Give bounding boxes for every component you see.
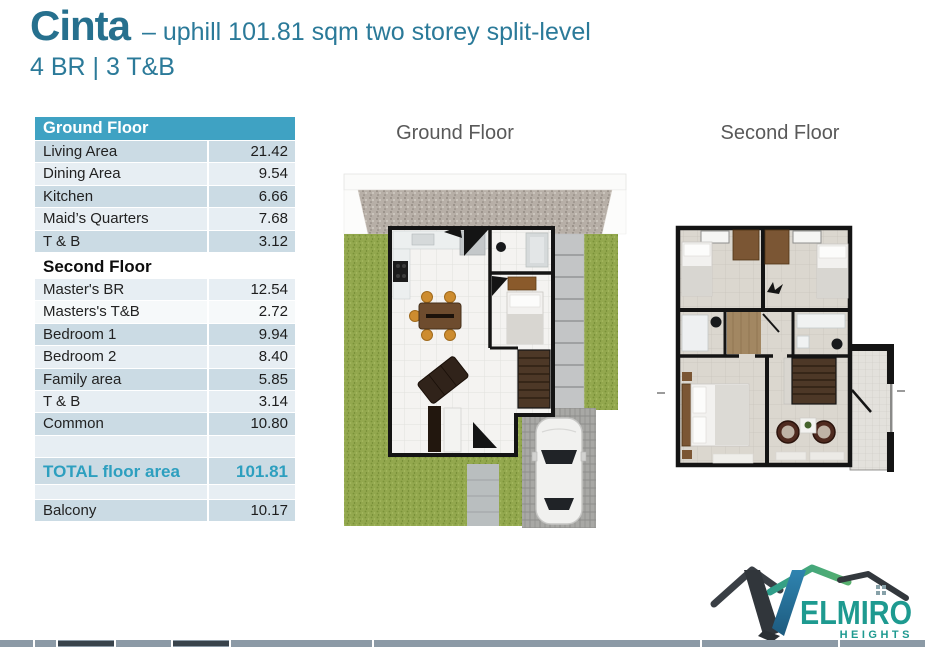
- table-row: Bedroom 19.94: [35, 324, 295, 346]
- row-label: Bedroom 1: [35, 324, 209, 345]
- row-value: 3.14: [209, 391, 295, 412]
- stairs: [784, 358, 836, 404]
- sink: [797, 336, 809, 348]
- dining-chair: [445, 292, 456, 303]
- row-value: 12.54: [209, 279, 295, 300]
- table-row: Common10.80: [35, 413, 295, 435]
- table-section-row: Second Floor: [35, 253, 295, 279]
- row-label: Kitchen: [35, 186, 209, 207]
- right-margin: [596, 410, 630, 530]
- row-label: TOTAL floor area: [35, 458, 209, 484]
- row-label: [35, 485, 209, 499]
- row-label: Balcony: [35, 500, 209, 521]
- console-shelf: [444, 408, 461, 452]
- cabinet: [508, 277, 536, 290]
- dimension-tick: [897, 390, 905, 392]
- row-value: 9.54: [209, 163, 295, 184]
- nightstand: [682, 450, 692, 459]
- row-value: [209, 485, 295, 499]
- stove: [393, 261, 408, 282]
- table-row: Family area5.85: [35, 369, 295, 391]
- tub: [797, 314, 845, 328]
- spec-line: 4 BR | 3 T&B: [30, 53, 591, 82]
- ground-floor-plan: [340, 168, 630, 530]
- car: [532, 418, 586, 524]
- headboard: [682, 384, 691, 446]
- row-value: 8.40: [209, 346, 295, 367]
- row-value: [209, 253, 295, 278]
- skylight: [793, 231, 821, 243]
- closet: [765, 230, 789, 264]
- nightstand: [682, 372, 692, 381]
- row-label: Masters's T&B: [35, 301, 209, 322]
- shower: [682, 315, 708, 351]
- table-row: Living Area21.42: [35, 141, 295, 163]
- toilet: [496, 242, 506, 252]
- row-value: 10.80: [209, 413, 295, 434]
- table-row: T & B3.12: [35, 231, 295, 253]
- table-row: Bedroom 28.40: [35, 346, 295, 368]
- title-line: Cinta – uphill 101.81 sqm two storey spl…: [30, 2, 591, 50]
- row-value: [209, 436, 295, 457]
- tv-unit: [428, 406, 441, 452]
- row-label: [35, 436, 209, 457]
- row-label: T & B: [35, 231, 209, 252]
- closet: [733, 230, 759, 260]
- row-value: 6.66: [209, 186, 295, 207]
- plant: [805, 422, 812, 429]
- kitchen-sink: [412, 234, 434, 245]
- mat: [776, 452, 806, 460]
- flyer-page: Cinta – uphill 101.81 sqm two storey spl…: [0, 0, 925, 647]
- toilet: [832, 339, 843, 350]
- table-row: Masters's T&B2.72: [35, 301, 295, 323]
- table-header-row: Ground Floor: [35, 117, 295, 141]
- second-floor-title: Second Floor: [665, 122, 895, 145]
- velmiro-heights-logo: ELMIRO HEIGHTS: [700, 558, 920, 642]
- ground-floor-plan-image: [340, 168, 630, 530]
- top-wall: [344, 174, 626, 190]
- table-row: Balcony10.17: [35, 500, 295, 522]
- row-value: 5.85: [209, 369, 295, 390]
- table-row: Kitchen6.66: [35, 186, 295, 208]
- dining-chair: [445, 330, 456, 341]
- balcony: [848, 344, 894, 472]
- row-value: [209, 117, 295, 140]
- row-value: 2.72: [209, 301, 295, 322]
- rug: [713, 454, 753, 463]
- table-row: Maid’s Quarters7.68: [35, 208, 295, 230]
- ground-floor-title: Ground Floor: [340, 122, 570, 145]
- mat: [810, 452, 844, 460]
- row-label: Master's BR: [35, 279, 209, 300]
- skylight: [701, 231, 729, 243]
- dimension-tick: [657, 392, 665, 394]
- row-label: Second Floor: [35, 253, 209, 278]
- table-spacer-row: [35, 436, 295, 458]
- table-row: Dining Area9.54: [35, 163, 295, 185]
- stairs: [518, 350, 550, 408]
- logo-wordmark: ELMIRO: [800, 594, 912, 631]
- page-subtitle: – uphill 101.81 sqm two storey split-lev…: [142, 18, 591, 47]
- page-title: Cinta: [30, 2, 130, 50]
- row-label: Living Area: [35, 141, 209, 162]
- dining-chair: [422, 330, 433, 341]
- row-label: Common: [35, 413, 209, 434]
- row-label: Family area: [35, 369, 209, 390]
- second-floor-plan: [655, 222, 905, 522]
- row-value: 21.42: [209, 141, 295, 162]
- side-pavers: [552, 234, 584, 410]
- area-table: Ground FloorLiving Area21.42Dining Area9…: [35, 117, 295, 522]
- header: Cinta – uphill 101.81 sqm two storey spl…: [30, 2, 591, 82]
- toilet: [711, 317, 722, 328]
- table-spacer-row: [35, 485, 295, 500]
- row-value: 101.81: [209, 458, 295, 484]
- row-value: 9.94: [209, 324, 295, 345]
- walkway: [467, 464, 499, 526]
- row-value: 3.12: [209, 231, 295, 252]
- row-value: 10.17: [209, 500, 295, 521]
- brand-logo: ELMIRO HEIGHTS: [700, 558, 920, 642]
- table-total-row: TOTAL floor area101.81: [35, 458, 295, 485]
- logo-v-mark: [744, 570, 806, 642]
- windshield: [541, 450, 577, 464]
- bottom-crop-strip: [0, 640, 925, 647]
- table-row: Master's BR12.54: [35, 279, 295, 301]
- second-floor-plan-image: [655, 222, 905, 522]
- rear-window: [544, 498, 574, 510]
- table-row: T & B3.14: [35, 391, 295, 413]
- row-label: T & B: [35, 391, 209, 412]
- row-label: Ground Floor: [35, 117, 209, 140]
- dining-chair: [422, 292, 433, 303]
- row-label: Bedroom 2: [35, 346, 209, 367]
- row-label: Dining Area: [35, 163, 209, 184]
- row-label: Maid’s Quarters: [35, 208, 209, 229]
- row-value: 7.68: [209, 208, 295, 229]
